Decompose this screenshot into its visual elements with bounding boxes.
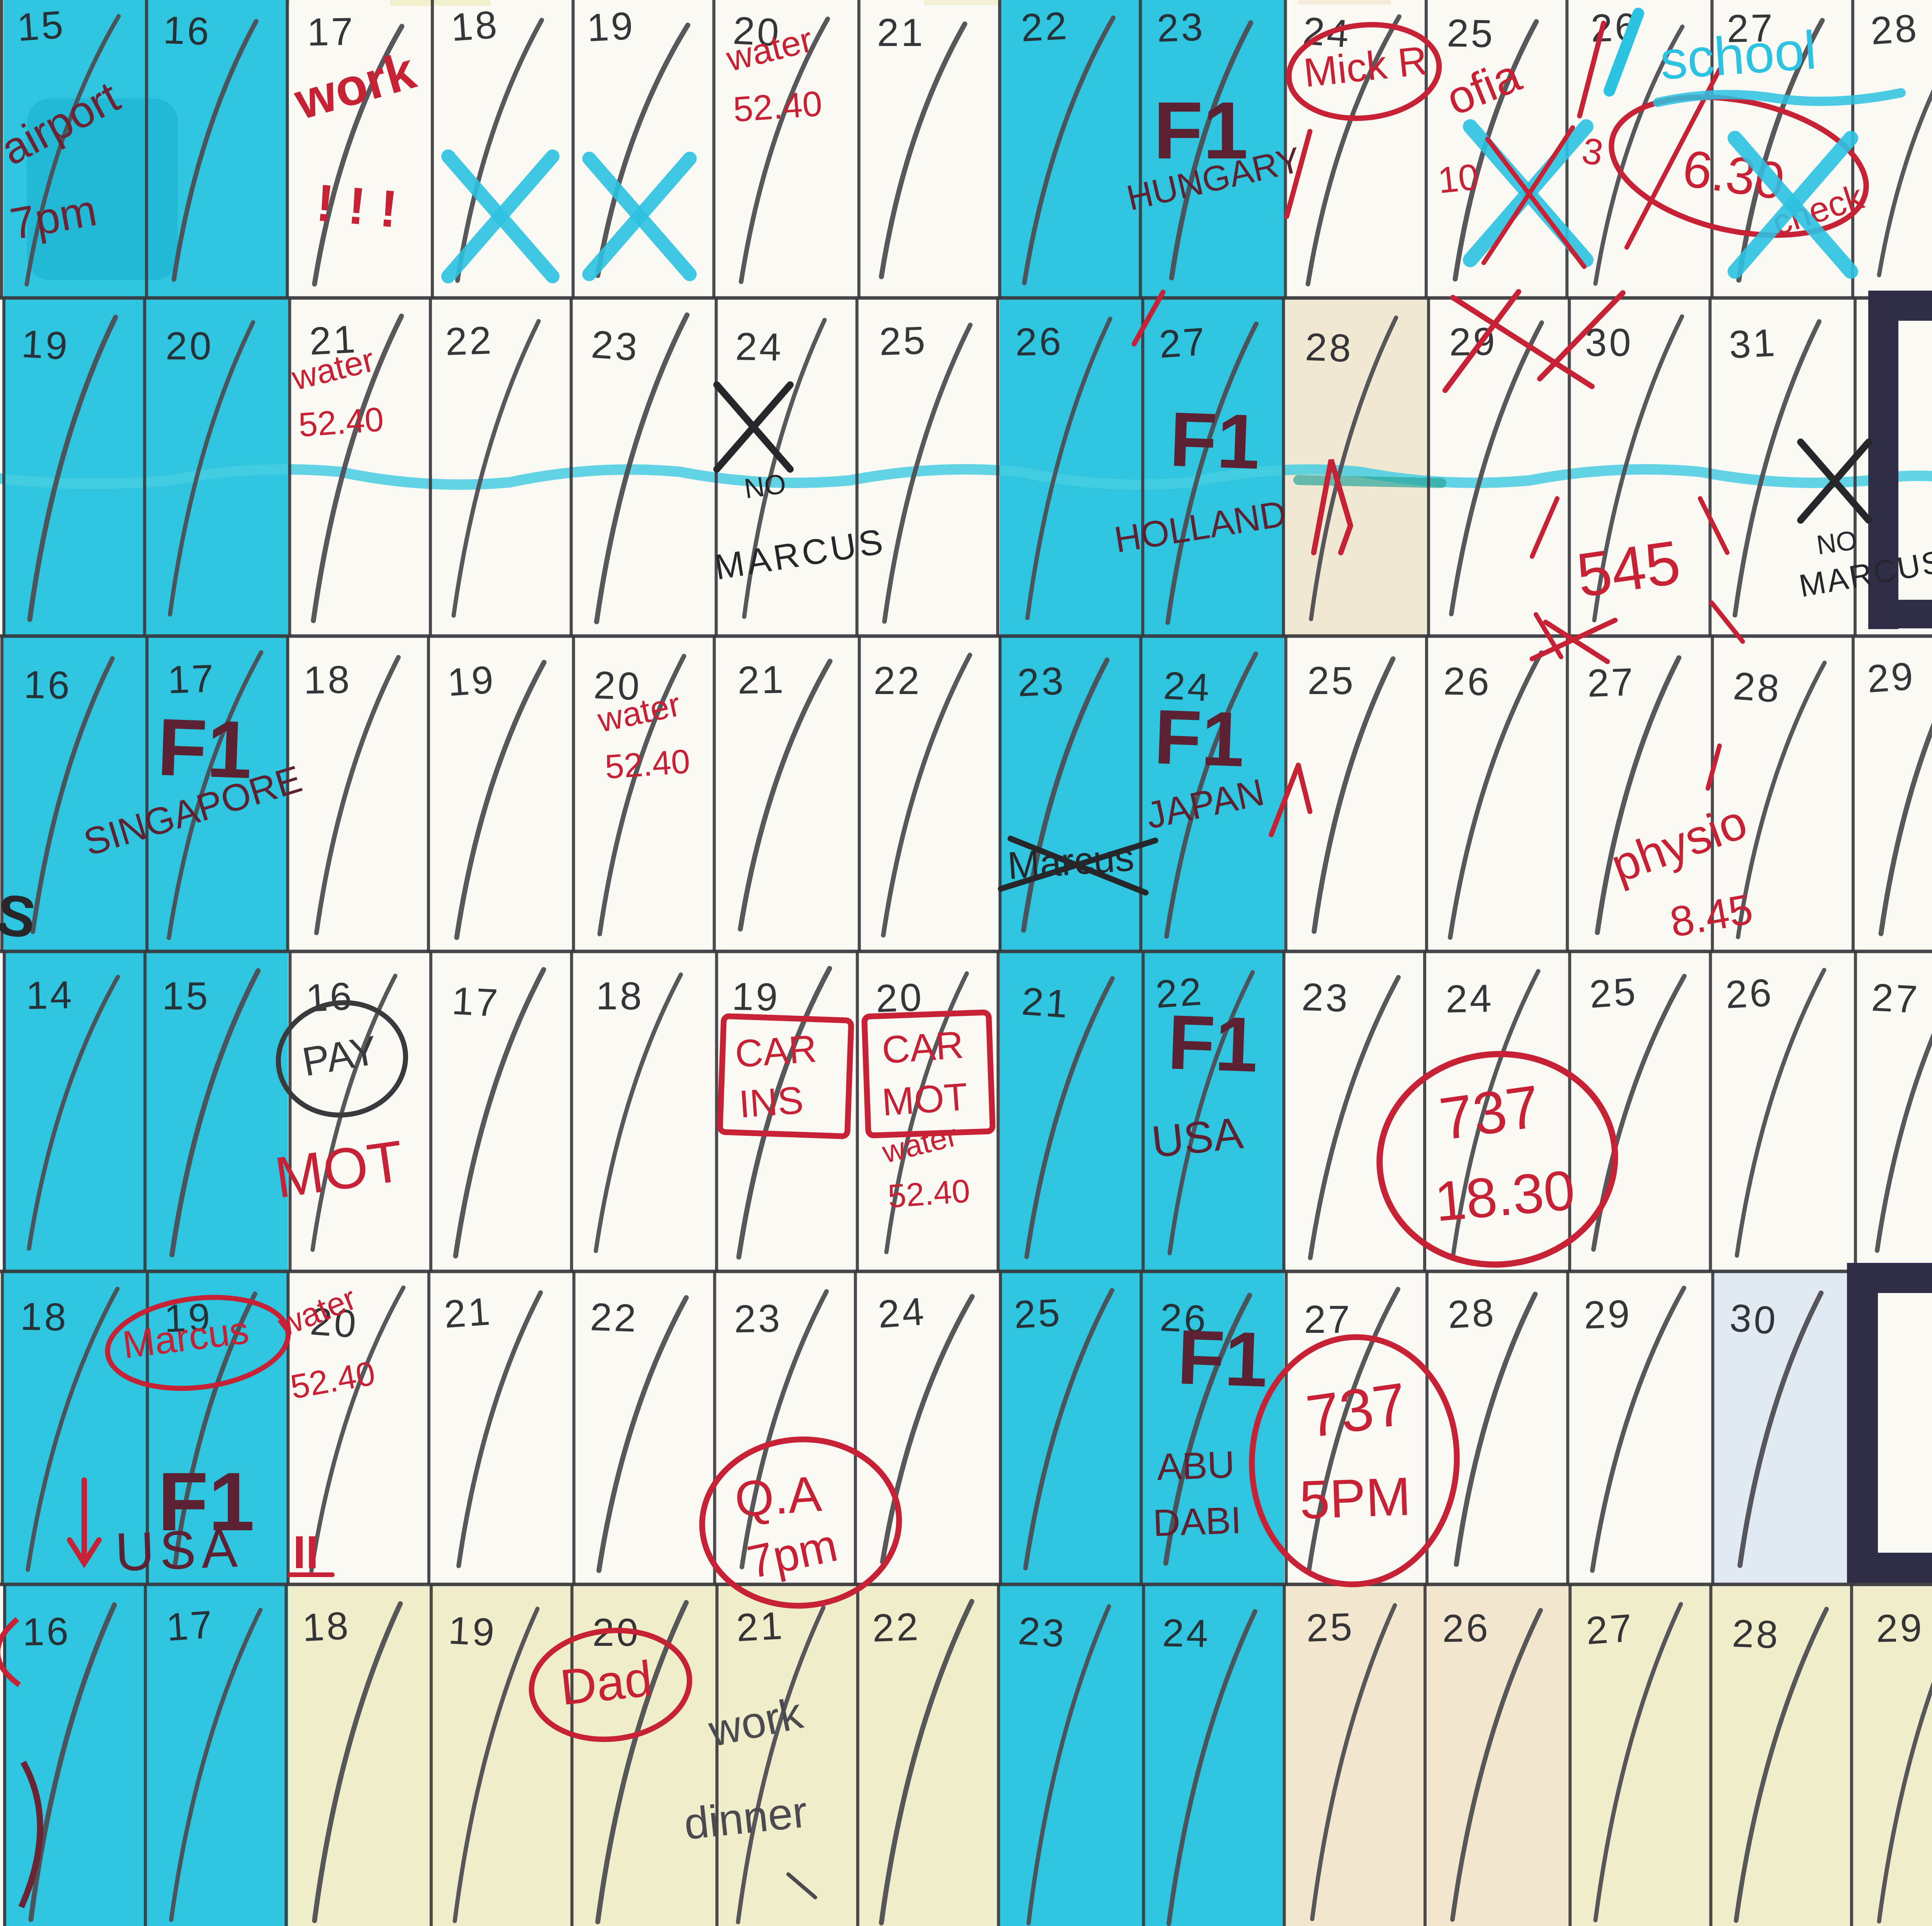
svg-text:17: 17	[165, 1603, 216, 1649]
svg-text:23: 23	[1301, 975, 1350, 1020]
svg-text:14: 14	[26, 973, 74, 1017]
svg-text:52.40: 52.40	[887, 1172, 971, 1215]
svg-text:26: 26	[1725, 971, 1775, 1017]
svg-text:26: 26	[1443, 660, 1492, 704]
svg-text:16: 16	[163, 9, 212, 53]
svg-text:17: 17	[167, 657, 216, 702]
svg-text:27: 27	[1587, 660, 1636, 705]
svg-text:19: 19	[20, 322, 71, 368]
svg-text:5PM: 5PM	[1299, 1466, 1412, 1530]
svg-text:25: 25	[1013, 1291, 1063, 1337]
svg-text:MOT: MOT	[881, 1075, 969, 1124]
svg-text:15: 15	[16, 3, 67, 49]
svg-text:18: 18	[20, 1295, 69, 1339]
svg-text:22: 22	[874, 659, 922, 703]
svg-text:24: 24	[1162, 1611, 1211, 1655]
svg-text:52.40: 52.40	[297, 400, 385, 444]
svg-text:25: 25	[1308, 659, 1355, 703]
svg-text:ABU: ABU	[1156, 1443, 1235, 1488]
svg-text:18.30: 18.30	[1432, 1159, 1578, 1233]
svg-text:16: 16	[22, 1610, 71, 1654]
svg-text:CAR: CAR	[881, 1023, 965, 1072]
svg-text:USA: USA	[114, 1518, 244, 1582]
svg-text:545: 545	[1573, 527, 1684, 610]
svg-text:28: 28	[1304, 325, 1354, 370]
svg-text:23: 23	[1017, 1609, 1068, 1655]
svg-text:F1: F1	[1168, 396, 1261, 485]
svg-text:25: 25	[879, 319, 928, 364]
svg-text:19: 19	[731, 975, 780, 1019]
svg-text:30: 30	[1728, 1296, 1779, 1342]
svg-text:26: 26	[1015, 320, 1064, 364]
svg-text:27: 27	[1585, 1606, 1636, 1653]
svg-text:27: 27	[1871, 976, 1921, 1021]
svg-text:F1: F1	[1153, 694, 1246, 783]
svg-text:school: school	[1658, 19, 1818, 91]
svg-text:23: 23	[1156, 5, 1206, 50]
svg-text:F1: F1	[1166, 999, 1259, 1088]
svg-text:18: 18	[450, 3, 501, 49]
svg-text:F1: F1	[1176, 1314, 1269, 1403]
svg-text:II: II	[293, 1526, 319, 1578]
svg-text:18: 18	[303, 658, 352, 702]
svg-text:23: 23	[1016, 659, 1066, 705]
svg-text:10: 10	[1436, 156, 1481, 201]
svg-text:17: 17	[307, 10, 355, 54]
svg-text:22: 22	[445, 319, 494, 364]
svg-text:29: 29	[1876, 1606, 1924, 1650]
svg-text:737: 737	[1303, 1370, 1411, 1450]
svg-text:25: 25	[1588, 970, 1639, 1016]
svg-text:17: 17	[451, 979, 501, 1025]
svg-text:21: 21	[443, 1290, 494, 1336]
svg-text:28: 28	[1731, 1612, 1781, 1657]
svg-text:18: 18	[301, 1604, 352, 1650]
svg-text:25: 25	[1447, 12, 1495, 56]
svg-text:NO: NO	[742, 468, 788, 505]
svg-text:737: 737	[1436, 1072, 1544, 1152]
svg-text:52.40: 52.40	[732, 84, 823, 129]
svg-text:22: 22	[589, 1295, 639, 1340]
svg-text:28: 28	[1732, 664, 1783, 711]
svg-text:DABI: DABI	[1152, 1499, 1242, 1544]
svg-text:21: 21	[735, 1604, 786, 1650]
svg-text:20: 20	[165, 325, 213, 368]
svg-text:16: 16	[24, 663, 72, 707]
svg-text:16: 16	[305, 975, 355, 1020]
svg-text:19: 19	[586, 4, 636, 50]
svg-text:25: 25	[1306, 1605, 1355, 1650]
svg-text:INS: INS	[738, 1079, 805, 1126]
svg-text:52.40: 52.40	[604, 742, 691, 786]
svg-text:18: 18	[596, 975, 644, 1018]
svg-text:Q.A: Q.A	[733, 1465, 823, 1528]
svg-text:Dad: Dad	[558, 1650, 655, 1716]
svg-text:USA: USA	[1149, 1108, 1245, 1167]
svg-text:15: 15	[162, 975, 210, 1018]
svg-text:! ! !: ! ! !	[314, 173, 400, 238]
svg-text:23: 23	[734, 1297, 782, 1341]
svg-text:28: 28	[1869, 7, 1920, 53]
svg-text:28: 28	[1447, 1291, 1497, 1337]
svg-text:NO: NO	[1815, 525, 1859, 560]
svg-text:19: 19	[447, 1609, 498, 1654]
svg-text:21: 21	[737, 658, 786, 702]
svg-text:27: 27	[1304, 1298, 1352, 1341]
svg-text:19: 19	[446, 658, 497, 704]
svg-text:21: 21	[1020, 980, 1071, 1026]
svg-text:21: 21	[877, 11, 925, 54]
svg-text:29: 29	[1866, 655, 1917, 701]
svg-text:22: 22	[872, 1605, 921, 1650]
svg-text:27: 27	[1158, 320, 1209, 366]
svg-text:29: 29	[1583, 1292, 1633, 1337]
svg-text:24: 24	[877, 1290, 928, 1336]
svg-text:24: 24	[1445, 977, 1494, 1021]
svg-text:CAR: CAR	[734, 1027, 818, 1075]
svg-text:22: 22	[1020, 4, 1070, 50]
svg-text:31: 31	[1728, 321, 1778, 367]
svg-text:26: 26	[1442, 1606, 1490, 1650]
svg-text:24: 24	[735, 325, 784, 369]
svg-text:23: 23	[590, 323, 641, 369]
